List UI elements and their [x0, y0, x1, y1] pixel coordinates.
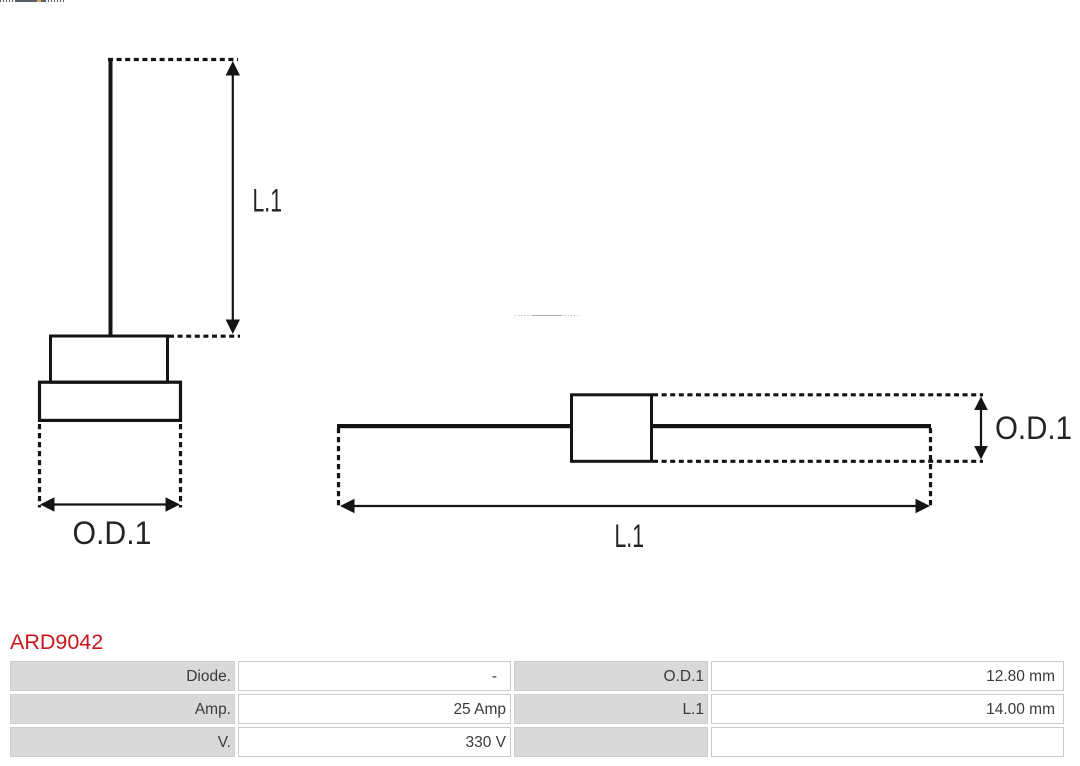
- svg-text:O.D.1: O.D.1: [995, 410, 1072, 446]
- svg-text:L.1: L.1: [615, 518, 645, 554]
- svg-text:L.1: L.1: [253, 183, 283, 219]
- svg-text:O.D.1: O.D.1: [73, 515, 152, 551]
